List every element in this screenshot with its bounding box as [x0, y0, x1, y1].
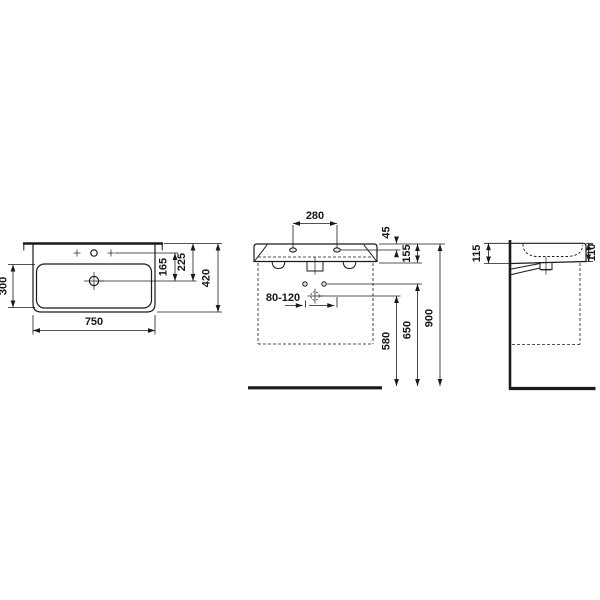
dim-label: 45: [381, 226, 393, 238]
dim-label: 420: [201, 269, 213, 287]
basin-front-outline: [254, 244, 377, 262]
dim-total-depth: 420: [201, 244, 219, 313]
deck-hole-right: [334, 248, 341, 252]
dim-back-to-drain: 225: [176, 244, 193, 282]
dim-label: 165: [158, 258, 170, 276]
dim-rim-to-apron: 155: [401, 244, 418, 263]
dim-hole-spacing: 280: [293, 210, 337, 248]
waste-pipe-line: [512, 268, 541, 275]
dim-label: 300: [0, 277, 10, 295]
basin-side-outline: [511, 243, 586, 261]
optional-tap-hole-right-mark: [108, 250, 115, 257]
dim-label: 280: [306, 210, 324, 222]
side-view: 115 110: [471, 240, 598, 389]
dim-label: 115: [471, 245, 483, 263]
dim-back-height: 115: [471, 243, 489, 263]
dim-label: 155: [401, 244, 413, 262]
dim-label: 225: [176, 253, 188, 271]
fixing-bolt-right: [322, 282, 326, 286]
dim-front-height: 110: [586, 243, 598, 261]
dim-bowl-depth: 300: [0, 265, 13, 308]
right-chamfer-line: [364, 245, 376, 261]
front-view: 280 45 155 80-120 580 650 900: [248, 210, 445, 388]
dim-trap-range: 80-120: [266, 292, 337, 308]
fixing-bolt-left: [303, 282, 307, 286]
dim-tap-to-drain: 165: [158, 253, 176, 281]
dim-label: 900: [424, 309, 436, 327]
dim-label: 110: [586, 244, 598, 262]
drawing-canvas: 300 165 225 420 750: [0, 0, 600, 600]
deck-hole-left: [290, 248, 297, 252]
wall-bracket-left: [272, 262, 285, 269]
optional-tap-hole-left-mark: [74, 250, 81, 257]
dim-width: 750: [33, 316, 155, 331]
left-chamfer-line: [255, 245, 267, 261]
wall-bracket-right: [343, 262, 356, 269]
dim-label: 650: [402, 321, 414, 339]
hidden-bowl-curve: [523, 244, 583, 257]
tap-hole: [91, 250, 97, 256]
technical-drawing: 300 165 225 420 750: [0, 0, 600, 600]
dim-fixing-height: 650: [402, 284, 418, 386]
dim-rim-height: 900: [424, 244, 441, 386]
dim-rim-to-hole: 45: [381, 226, 397, 257]
dim-label: 580: [381, 332, 393, 350]
dim-label: 80-120: [266, 292, 300, 304]
dim-trap-height: 580: [381, 296, 397, 386]
waste-pipe-line: [512, 264, 541, 270]
dim-label: 750: [85, 316, 103, 328]
plan-view: 300 165 225 420 750: [0, 244, 222, 335]
